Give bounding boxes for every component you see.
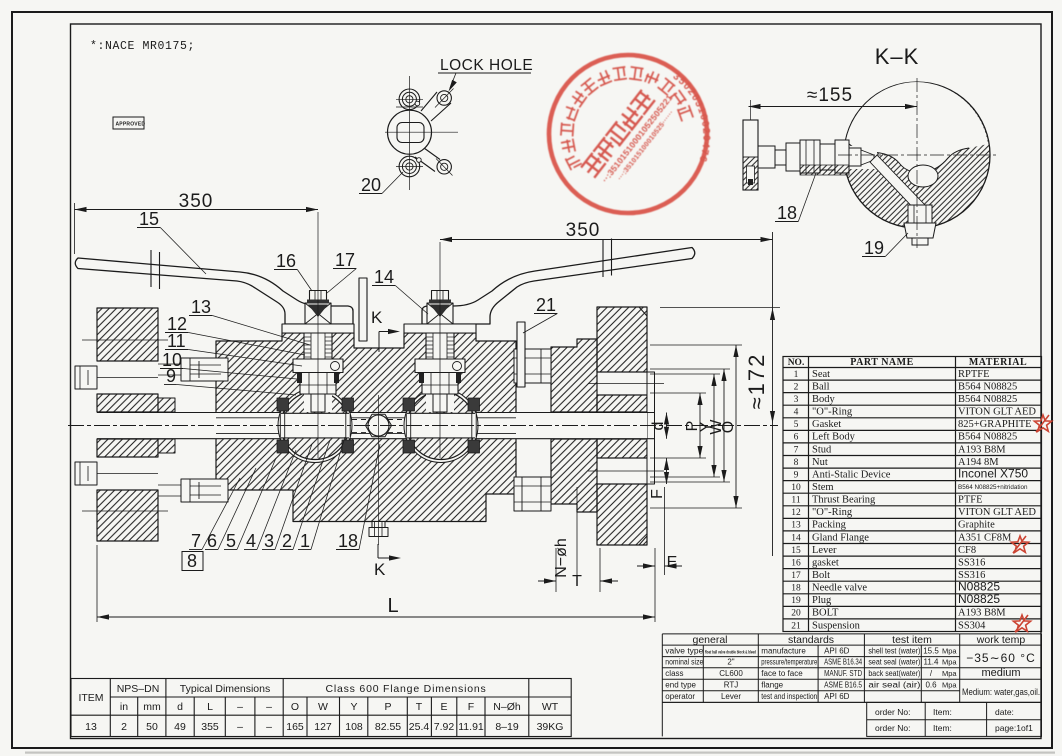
svg-text:ASME B16.5: ASME B16.5 <box>824 681 862 690</box>
svg-text:39KG: 39KG <box>537 721 564 733</box>
svg-text:4: 4 <box>246 531 256 551</box>
svg-text:seat seal (water): seat seal (water) <box>868 658 920 667</box>
svg-text:SS304: SS304 <box>958 620 986 631</box>
svg-text:7.92: 7.92 <box>434 721 455 733</box>
svg-text:L: L <box>387 595 398 617</box>
svg-text:–: – <box>266 721 272 733</box>
svg-text:work temp: work temp <box>976 634 1026 646</box>
svg-text:manufacture: manufacture <box>761 646 806 655</box>
svg-text:11.91: 11.91 <box>458 721 484 733</box>
svg-text:2": 2" <box>727 658 734 667</box>
svg-text:82.55: 82.55 <box>375 721 401 733</box>
svg-text:Needle valve: Needle valve <box>812 583 867 594</box>
svg-text:Lever: Lever <box>721 692 741 701</box>
svg-text:BOLT: BOLT <box>812 608 839 619</box>
svg-text:8: 8 <box>794 458 799 468</box>
svg-text:B564 N08825: B564 N08825 <box>958 381 1017 392</box>
svg-text:5: 5 <box>226 531 236 551</box>
svg-text:"O"-Ring: "O"-Ring <box>812 507 853 518</box>
svg-text:2: 2 <box>121 721 127 733</box>
svg-text:SS316: SS316 <box>958 557 985 568</box>
svg-text:E: E <box>667 554 678 571</box>
svg-text:19: 19 <box>864 238 884 258</box>
svg-text:Stem: Stem <box>812 482 834 493</box>
svg-text:B564 N08825: B564 N08825 <box>958 394 1017 405</box>
svg-text:B564 N08825: B564 N08825 <box>958 432 1017 443</box>
svg-text:air seal (air): air seal (air) <box>868 681 920 690</box>
svg-text:NO.: NO. <box>788 358 805 368</box>
svg-text:L: L <box>207 701 213 713</box>
svg-text:21: 21 <box>536 295 556 315</box>
svg-text:VITON GLT AED: VITON GLT AED <box>958 507 1036 518</box>
svg-text:20: 20 <box>361 175 381 195</box>
svg-text:Ball: Ball <box>812 381 830 392</box>
svg-text:face to face: face to face <box>761 669 803 678</box>
svg-text:d: d <box>650 422 667 431</box>
svg-text:PART NAME: PART NAME <box>850 357 914 368</box>
svg-text:P: P <box>384 701 391 713</box>
svg-text:NPS–DN: NPS–DN <box>117 683 160 695</box>
svg-text:Class 600 Flange Dimensions: Class 600 Flange Dimensions <box>325 683 486 695</box>
svg-text:O: O <box>720 421 737 433</box>
svg-text:9: 9 <box>794 470 799 480</box>
svg-text:K: K <box>374 560 386 579</box>
svg-text:15: 15 <box>791 546 801 556</box>
svg-text:RTJ: RTJ <box>724 681 739 690</box>
svg-text:W: W <box>318 701 328 713</box>
svg-text:WT: WT <box>542 701 559 713</box>
svg-text:Stud: Stud <box>812 444 832 455</box>
svg-text:16: 16 <box>791 558 801 568</box>
svg-text:15: 15 <box>139 209 159 229</box>
svg-text:CF8: CF8 <box>958 545 976 556</box>
svg-text:2: 2 <box>282 531 292 551</box>
svg-text:gasket: gasket <box>812 557 839 568</box>
svg-text:13: 13 <box>191 297 211 317</box>
svg-text:8: 8 <box>187 551 197 571</box>
svg-text:350: 350 <box>179 191 214 212</box>
svg-text:Inconel X750: Inconel X750 <box>958 466 1028 480</box>
svg-text:Nut: Nut <box>812 457 828 468</box>
svg-text:Bolt: Bolt <box>812 570 830 581</box>
svg-text:operator: operator <box>665 692 695 701</box>
svg-text:−35∼60 °C: −35∼60 °C <box>966 651 1036 665</box>
svg-text:17: 17 <box>335 250 355 270</box>
svg-text:d: d <box>177 701 183 713</box>
svg-text:standards: standards <box>788 634 834 646</box>
svg-text:back seat(water): back seat(water) <box>868 669 920 678</box>
svg-text:Thrust Bearing: Thrust Bearing <box>812 495 876 506</box>
svg-text:Y: Y <box>350 701 357 713</box>
svg-text:APPROVED: APPROVED <box>116 122 146 128</box>
svg-text:6: 6 <box>207 531 217 551</box>
svg-text:11.4: 11.4 <box>924 658 940 667</box>
svg-text:Packing: Packing <box>812 520 847 531</box>
svg-text:6: 6 <box>794 433 799 443</box>
svg-text:2: 2 <box>794 382 799 392</box>
svg-text:F: F <box>649 489 666 499</box>
svg-text:12: 12 <box>791 508 801 518</box>
svg-text:13: 13 <box>791 521 801 531</box>
svg-text:Anti-Stalic Device: Anti-Stalic Device <box>812 469 891 480</box>
svg-text:PTFE: PTFE <box>958 495 983 506</box>
svg-text:class: class <box>665 669 683 678</box>
svg-text:Item:: Item: <box>933 707 952 717</box>
svg-text:≈155: ≈155 <box>807 85 853 106</box>
svg-text:Lever: Lever <box>812 545 837 556</box>
svg-text:E: E <box>440 701 447 713</box>
svg-text:"O"-Ring: "O"-Ring <box>812 407 853 418</box>
svg-text:A193 B8M: A193 B8M <box>958 608 1006 619</box>
svg-text:825+GRAPHITE: 825+GRAPHITE <box>958 419 1032 430</box>
svg-text:order No:: order No: <box>875 707 910 717</box>
svg-text:14: 14 <box>791 533 801 543</box>
svg-text:general: general <box>692 634 727 646</box>
svg-text:11: 11 <box>791 496 800 506</box>
svg-text:date:: date: <box>995 707 1014 717</box>
svg-text:355: 355 <box>201 721 219 733</box>
svg-text:8–19: 8–19 <box>495 721 519 733</box>
svg-text:RPTFE: RPTFE <box>958 369 990 380</box>
svg-text:Typical Dimensions: Typical Dimensions <box>180 683 270 695</box>
svg-text:nominal size: nominal size <box>665 658 703 667</box>
svg-text:K–K: K–K <box>875 44 920 69</box>
svg-text:Gasket: Gasket <box>812 419 841 430</box>
svg-text:ASME B16.34: ASME B16.34 <box>824 658 862 667</box>
svg-text:7: 7 <box>191 531 201 551</box>
svg-text:350: 350 <box>566 220 601 241</box>
svg-text:20: 20 <box>791 609 801 619</box>
svg-text:O: O <box>291 701 299 713</box>
svg-text:18: 18 <box>777 203 797 223</box>
svg-text:*:NACE MR0175;: *:NACE MR0175; <box>90 40 195 53</box>
svg-text:API 6D: API 6D <box>824 646 850 655</box>
svg-text:Suspension: Suspension <box>812 620 861 631</box>
svg-text:Left Body: Left Body <box>812 432 856 443</box>
svg-text:50: 50 <box>146 721 158 733</box>
svg-text:14: 14 <box>374 267 394 287</box>
svg-text:test item: test item <box>892 634 932 646</box>
svg-text:order No:: order No: <box>875 723 910 733</box>
svg-text:N08825: N08825 <box>958 592 1000 606</box>
svg-text:11: 11 <box>167 331 186 351</box>
svg-text:B564 N08825+nitridation: B564 N08825+nitridation <box>958 484 1028 491</box>
svg-text:T: T <box>416 701 423 713</box>
svg-text:–: – <box>237 721 243 733</box>
svg-text:API 6D: API 6D <box>824 692 850 701</box>
svg-text:Body: Body <box>812 394 836 405</box>
svg-text:Graphite: Graphite <box>958 520 995 531</box>
svg-text:ITEM: ITEM <box>78 692 103 704</box>
svg-text:N−øh: N−øh <box>553 538 570 578</box>
svg-text:3: 3 <box>264 531 274 551</box>
svg-text:21: 21 <box>791 621 801 631</box>
svg-text:4: 4 <box>794 408 799 418</box>
svg-text:A351 CF8M: A351 CF8M <box>958 532 1012 543</box>
svg-text:shell test (water): shell test (water) <box>868 646 920 655</box>
svg-text:Plug: Plug <box>812 595 832 606</box>
svg-text:17: 17 <box>791 571 801 581</box>
svg-text:pressure/temperature: pressure/temperature <box>761 658 817 667</box>
svg-text:7: 7 <box>794 445 799 455</box>
svg-text:Item:: Item: <box>933 723 952 733</box>
svg-text:medium: medium <box>981 667 1020 679</box>
svg-text:MANUF. STD: MANUF. STD <box>824 669 862 678</box>
svg-text:19: 19 <box>791 596 801 606</box>
svg-text:VITON GLT AED: VITON GLT AED <box>958 407 1036 418</box>
svg-text:13: 13 <box>85 721 97 733</box>
svg-text:127: 127 <box>314 721 332 733</box>
svg-text:18: 18 <box>791 584 801 594</box>
svg-text:1: 1 <box>300 531 310 551</box>
svg-text:float ball valve double block: float ball valve double block & bleed <box>705 649 756 654</box>
svg-text:18: 18 <box>338 531 358 551</box>
svg-text:Medium: water,gas,oil.: Medium: water,gas,oil. <box>962 687 1040 697</box>
svg-text:25.4: 25.4 <box>409 721 430 733</box>
svg-text:test and inspection: test and inspection <box>761 692 817 701</box>
svg-text:165: 165 <box>286 721 304 733</box>
svg-text:Seat: Seat <box>812 369 830 380</box>
svg-text:A193 B8M: A193 B8M <box>958 444 1006 455</box>
svg-text:K: K <box>371 308 383 327</box>
svg-text:MATERIAL: MATERIAL <box>969 357 1027 368</box>
svg-text:1: 1 <box>794 370 799 380</box>
svg-text:108: 108 <box>345 721 363 733</box>
svg-text:5: 5 <box>794 420 799 430</box>
svg-text:Mpa: Mpa <box>942 658 957 667</box>
svg-text:N–Øh: N–Øh <box>493 701 521 713</box>
svg-text:flange: flange <box>761 681 783 690</box>
svg-text:49: 49 <box>174 721 186 733</box>
svg-text:CL600: CL600 <box>719 669 743 678</box>
svg-text:in: in <box>120 701 128 713</box>
svg-text:LOCK HOLE: LOCK HOLE <box>440 57 533 74</box>
svg-text:Mpa: Mpa <box>942 669 957 678</box>
svg-text:F: F <box>468 701 474 713</box>
svg-text:end type: end type <box>665 681 696 690</box>
svg-text:3: 3 <box>794 395 799 405</box>
svg-text:15.5: 15.5 <box>923 646 939 655</box>
svg-text:9: 9 <box>166 366 176 386</box>
svg-text:≈172: ≈172 <box>744 353 769 410</box>
svg-text:Gland Flange: Gland Flange <box>812 532 869 543</box>
svg-text:–: – <box>237 701 243 713</box>
svg-text:valve type: valve type <box>665 646 704 655</box>
svg-text:page:1of1: page:1of1 <box>995 723 1033 733</box>
svg-text:16: 16 <box>276 251 296 271</box>
svg-text:0.6: 0.6 <box>925 681 937 690</box>
svg-text:10: 10 <box>791 483 801 493</box>
svg-text:–: – <box>266 701 272 713</box>
svg-text:mm: mm <box>143 701 161 713</box>
svg-text:Mpa: Mpa <box>942 646 957 655</box>
svg-text:Mpa: Mpa <box>942 681 957 690</box>
